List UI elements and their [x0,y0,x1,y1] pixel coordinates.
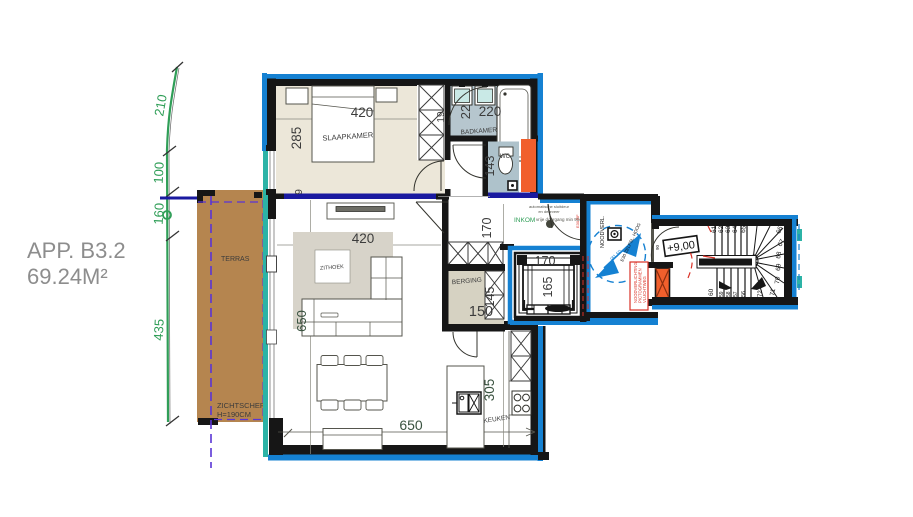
svg-text:90: 90 [655,244,660,250]
svg-text:63: 63 [725,225,732,233]
svg-text:420: 420 [351,105,374,120]
svg-text:69.24M²: 69.24M² [27,264,108,289]
svg-text:100: 100 [151,162,167,184]
svg-text:56: 56 [741,291,747,297]
svg-text:9: 9 [294,189,305,195]
svg-text:145: 145 [483,287,497,308]
svg-text:APP. B3.2: APP. B3.2 [27,238,126,263]
svg-text:650: 650 [399,417,423,433]
svg-text:62: 62 [718,225,725,233]
svg-text:285: 285 [289,127,304,150]
svg-text:64: 64 [732,225,739,233]
svg-text:58: 58 [726,291,732,297]
svg-text:143: 143 [483,156,497,177]
svg-text:E30 RF: E30 RF [575,214,580,228]
svg-text:WC: WC [500,154,511,160]
svg-text:INKOM: INKOM [514,217,535,224]
svg-text:65: 65 [740,225,748,233]
svg-text:VLUCHTWEG: VLUCHTWEG [642,276,647,303]
svg-text:22: 22 [458,105,473,119]
svg-text:TERRAS: TERRAS [221,256,250,263]
svg-text:19: 19 [436,111,447,123]
svg-text:170: 170 [480,218,494,239]
svg-text:69: 69 [775,263,783,271]
svg-text:305: 305 [482,379,497,402]
svg-text:70: 70 [774,276,782,284]
svg-text:435: 435 [151,319,167,341]
svg-text:61: 61 [711,225,718,233]
svg-text:170: 170 [535,254,556,268]
svg-text:60: 60 [708,288,715,296]
svg-text:420: 420 [352,231,375,246]
svg-text:165: 165 [541,277,555,298]
svg-text:220: 220 [479,104,502,119]
svg-text:160: 160 [151,203,167,225]
svg-text:57: 57 [733,291,739,297]
svg-text:650: 650 [294,310,309,332]
svg-text:72: 72 [758,290,764,297]
svg-text:NOODVERL.: NOODVERL. [600,215,606,248]
svg-text:H=190CM: H=190CM [217,410,251,419]
svg-text:59: 59 [719,291,725,297]
